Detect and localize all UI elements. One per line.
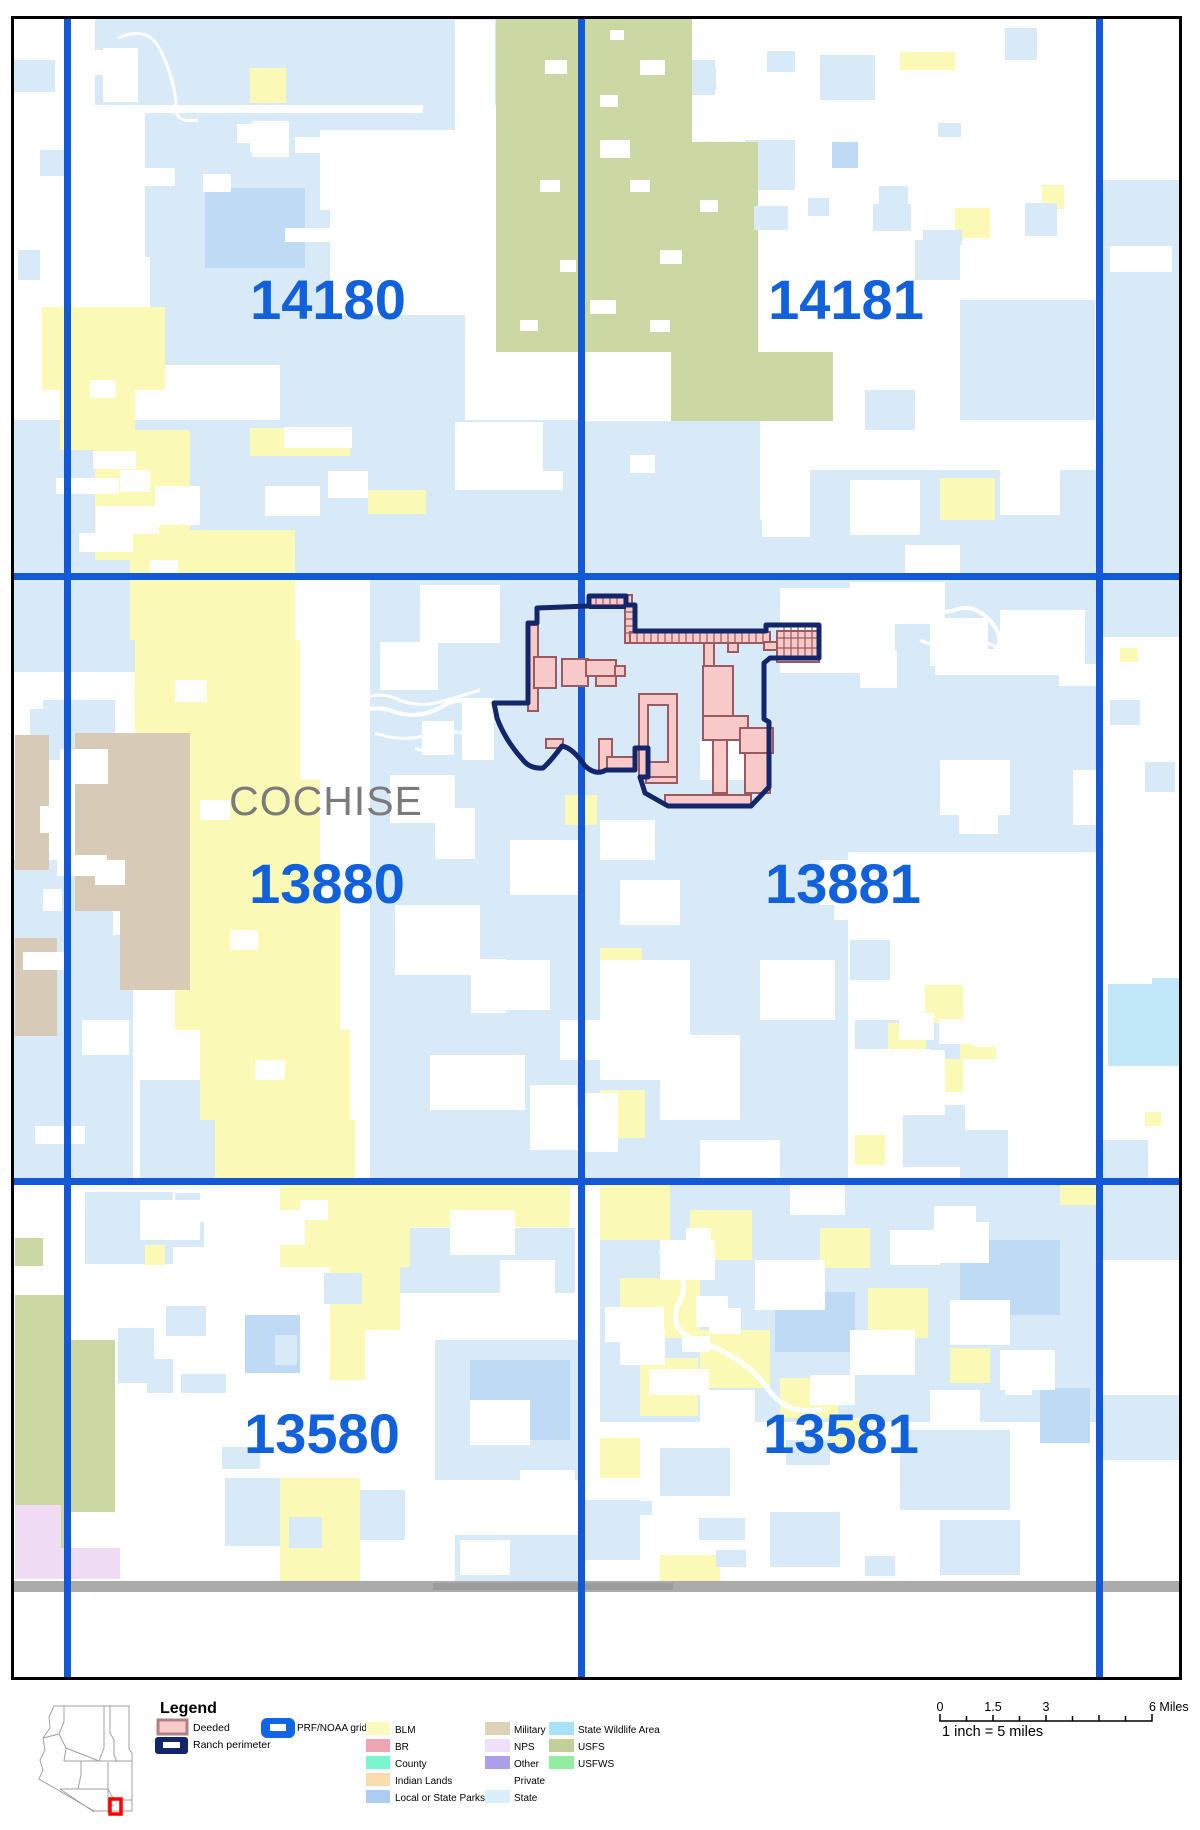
svg-text:State Wildlife Area: State Wildlife Area [578, 1725, 660, 1736]
svg-text:14180: 14180 [250, 268, 406, 331]
svg-text:13880: 13880 [249, 852, 405, 915]
svg-text:USFS: USFS [578, 1742, 605, 1753]
svg-text:Local or State Parks: Local or State Parks [395, 1793, 485, 1804]
svg-text:BR: BR [395, 1742, 409, 1753]
svg-text:0: 0 [937, 1700, 944, 1714]
svg-text:COCHISE: COCHISE [229, 778, 423, 824]
svg-text:1 inch = 5 miles: 1 inch = 5 miles [942, 1724, 1043, 1740]
svg-text:Legend: Legend [160, 1700, 217, 1717]
svg-text:Other: Other [514, 1759, 540, 1770]
svg-text:6 Miles: 6 Miles [1149, 1700, 1189, 1714]
svg-text:NPS: NPS [514, 1742, 535, 1753]
svg-text:State: State [514, 1793, 538, 1804]
svg-text:13581: 13581 [763, 1402, 919, 1465]
svg-text:County: County [395, 1759, 427, 1770]
svg-text:13580: 13580 [244, 1402, 400, 1465]
svg-text:13881: 13881 [765, 852, 921, 915]
svg-text:Military: Military [514, 1725, 546, 1736]
svg-text:14181: 14181 [768, 268, 924, 331]
svg-text:3: 3 [1043, 1700, 1050, 1714]
svg-text:Ranch perimeter: Ranch perimeter [193, 1739, 271, 1751]
svg-text:Indian Lands: Indian Lands [395, 1776, 452, 1787]
svg-text:1.5: 1.5 [984, 1700, 1001, 1714]
svg-text:BLM: BLM [395, 1725, 416, 1736]
svg-text:Deeded: Deeded [193, 1722, 230, 1734]
svg-text:USFWS: USFWS [578, 1759, 614, 1770]
svg-text:PRF/NOAA grid: PRF/NOAA grid [297, 1723, 367, 1734]
svg-text:Private: Private [514, 1776, 546, 1787]
